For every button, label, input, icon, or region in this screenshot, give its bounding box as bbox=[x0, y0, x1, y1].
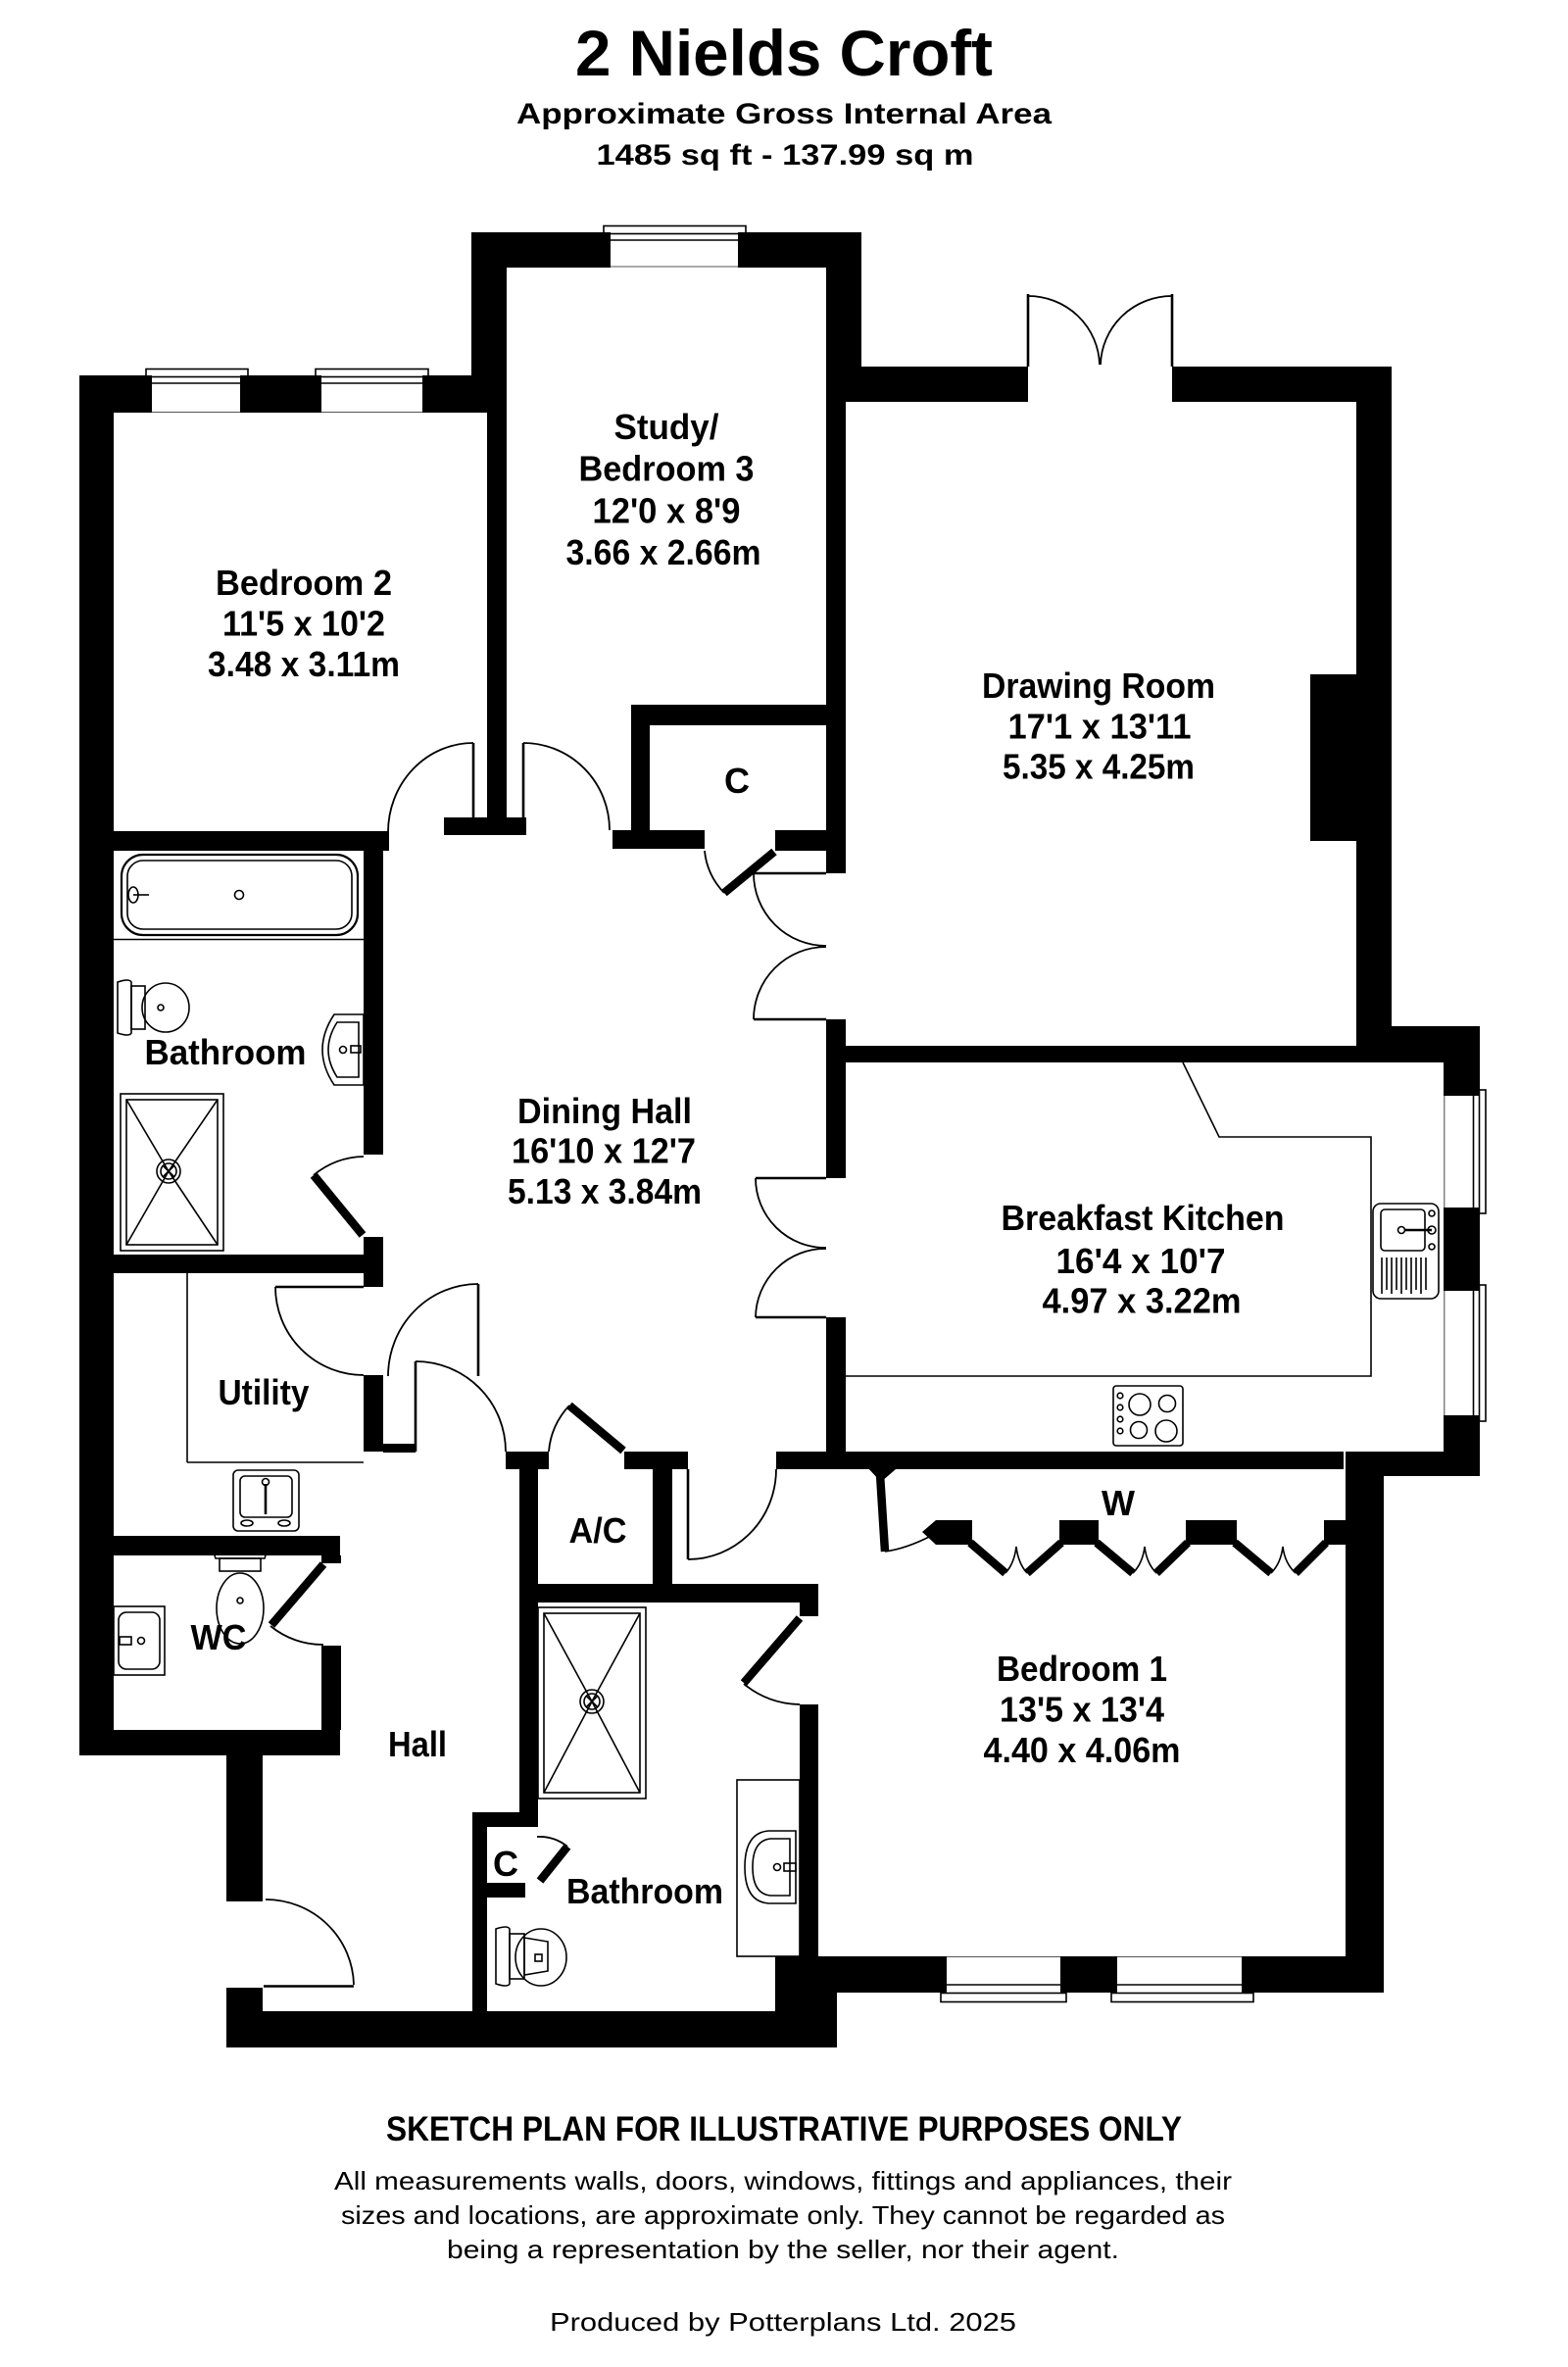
svg-text:5.13 x 3.84m: 5.13 x 3.84m bbox=[508, 1171, 702, 1211]
svg-text:5.35 x 4.25m: 5.35 x 4.25m bbox=[1003, 747, 1195, 787]
svg-text:3.66 x 2.66m: 3.66 x 2.66m bbox=[566, 532, 761, 572]
svg-text:being a representation by the: being a representation by the seller, no… bbox=[447, 2235, 1119, 2264]
svg-text:SKETCH PLAN FOR ILLUSTRATIVE P: SKETCH PLAN FOR ILLUSTRATIVE PURPOSES ON… bbox=[386, 2110, 1182, 2148]
svg-text:Bathroom: Bathroom bbox=[566, 1871, 723, 1911]
svg-text:Bedroom 1: Bedroom 1 bbox=[997, 1649, 1167, 1689]
svg-text:Produced by Potterplans Ltd. 2: Produced by Potterplans Ltd. 2025 bbox=[550, 2307, 1016, 2337]
svg-text:All measurements walls, doors,: All measurements walls, doors, windows, … bbox=[334, 2166, 1232, 2195]
svg-text:2 Nields Croft: 2 Nields Croft bbox=[575, 17, 993, 89]
svg-text:4.40 x 4.06m: 4.40 x 4.06m bbox=[984, 1730, 1181, 1770]
svg-text:Breakfast Kitchen: Breakfast Kitchen bbox=[1002, 1198, 1285, 1238]
svg-text:1485 sq ft - 137.99 sq m: 1485 sq ft - 137.99 sq m bbox=[597, 139, 974, 172]
svg-text:11'5 x 10'2: 11'5 x 10'2 bbox=[222, 604, 385, 644]
svg-text:Approximate Gross Internal Are: Approximate Gross Internal Area bbox=[516, 98, 1052, 130]
svg-text:13'5 x 13'4: 13'5 x 13'4 bbox=[1000, 1690, 1164, 1730]
svg-text:C: C bbox=[724, 761, 750, 801]
svg-text:Dining Hall: Dining Hall bbox=[517, 1091, 692, 1131]
svg-text:Bedroom 2: Bedroom 2 bbox=[216, 563, 392, 603]
svg-text:Hall: Hall bbox=[388, 1724, 447, 1764]
svg-text:16'10 x 12'7: 16'10 x 12'7 bbox=[512, 1131, 696, 1171]
svg-text:sizes and locations, are appro: sizes and locations, are approximate onl… bbox=[341, 2200, 1225, 2230]
svg-text:C: C bbox=[493, 1844, 518, 1884]
svg-text:Bathroom: Bathroom bbox=[145, 1032, 307, 1072]
svg-text:Drawing Room: Drawing Room bbox=[982, 666, 1215, 706]
svg-text:W: W bbox=[1102, 1483, 1135, 1523]
svg-text:16'4 x 10'7: 16'4 x 10'7 bbox=[1056, 1241, 1226, 1281]
svg-text:WC: WC bbox=[191, 1617, 247, 1657]
svg-text:Study/: Study/ bbox=[614, 407, 719, 447]
svg-text:3.48 x 3.11m: 3.48 x 3.11m bbox=[208, 644, 400, 684]
svg-text:17'1 x 13'11: 17'1 x 13'11 bbox=[1008, 706, 1192, 746]
svg-text:12'0 x 8'9: 12'0 x 8'9 bbox=[593, 491, 741, 531]
svg-text:4.97 x 3.22m: 4.97 x 3.22m bbox=[1043, 1281, 1242, 1321]
svg-text:A/C: A/C bbox=[569, 1510, 627, 1551]
svg-text:Bedroom 3: Bedroom 3 bbox=[579, 449, 755, 489]
svg-text:Utility: Utility bbox=[219, 1372, 310, 1412]
